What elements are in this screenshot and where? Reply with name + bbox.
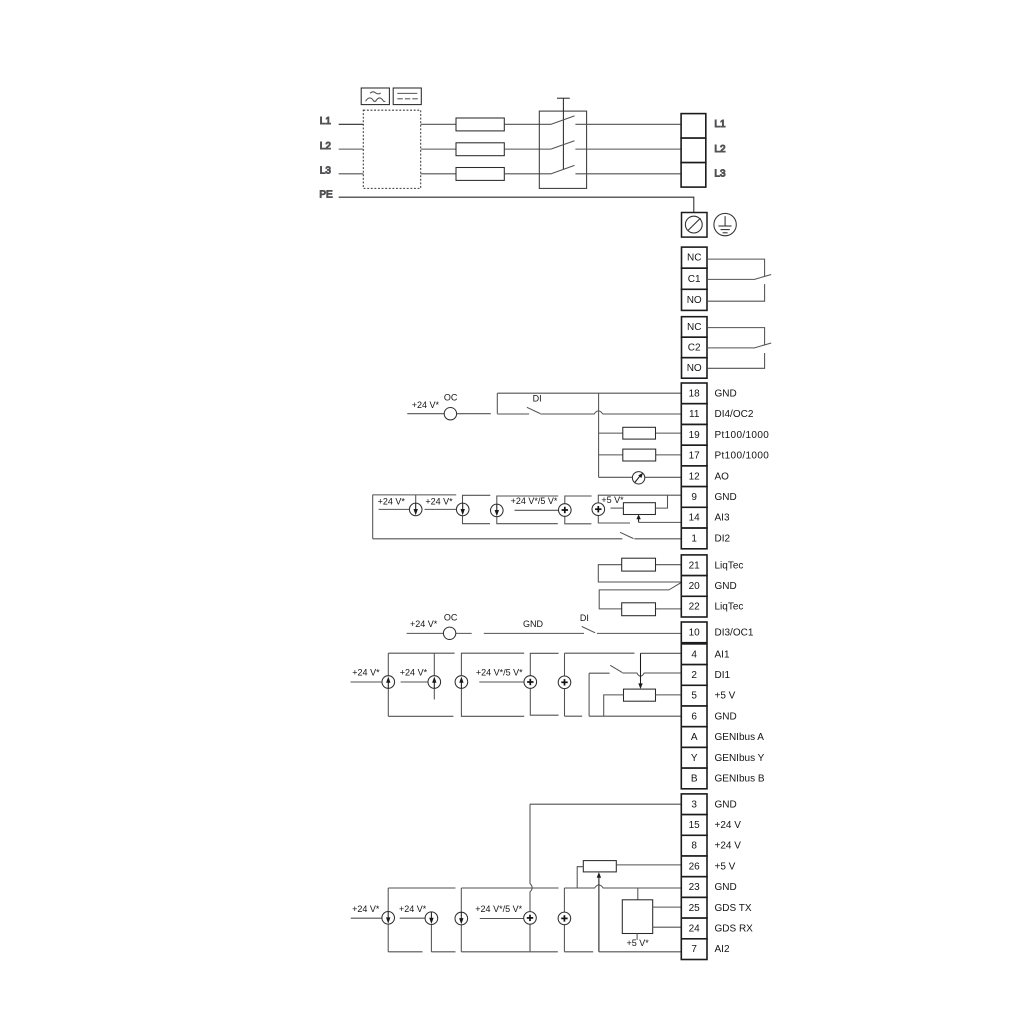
svg-text:7: 7 bbox=[691, 944, 697, 955]
svg-text:+24 V*: +24 V* bbox=[352, 904, 380, 914]
svg-text:NC: NC bbox=[687, 322, 701, 333]
svg-text:21: 21 bbox=[689, 560, 701, 571]
svg-text:Pt100/1000: Pt100/1000 bbox=[715, 451, 770, 462]
svg-text:DI: DI bbox=[580, 613, 589, 623]
svg-text:8: 8 bbox=[691, 841, 697, 852]
svg-text:6: 6 bbox=[691, 711, 697, 722]
svg-text:+24 V*: +24 V* bbox=[400, 667, 428, 677]
svg-text:24: 24 bbox=[689, 924, 701, 935]
svg-text:Y: Y bbox=[691, 753, 698, 764]
svg-text:23: 23 bbox=[689, 882, 701, 893]
svg-text:DI2: DI2 bbox=[715, 533, 731, 544]
svg-text:GND: GND bbox=[715, 711, 737, 722]
svg-text:LiqTec: LiqTec bbox=[715, 560, 744, 571]
svg-text:GDS TX: GDS TX bbox=[715, 903, 752, 914]
svg-text:25: 25 bbox=[689, 903, 701, 914]
svg-text:LiqTec: LiqTec bbox=[715, 602, 744, 613]
svg-text:L2: L2 bbox=[320, 141, 332, 152]
svg-text:14: 14 bbox=[689, 513, 701, 524]
svg-text:26: 26 bbox=[689, 861, 701, 872]
svg-text:L3: L3 bbox=[320, 166, 332, 177]
svg-text:19: 19 bbox=[689, 430, 701, 441]
svg-text:+24 V*: +24 V* bbox=[378, 497, 406, 507]
svg-text:AI1: AI1 bbox=[715, 649, 730, 660]
svg-text:+24 V*: +24 V* bbox=[399, 904, 427, 914]
svg-text:+24 V*/5 V*: +24 V*/5 V* bbox=[476, 667, 523, 677]
svg-text:20: 20 bbox=[689, 581, 701, 592]
svg-text:+24 V*: +24 V* bbox=[425, 497, 453, 507]
svg-text:L2: L2 bbox=[714, 144, 726, 155]
svg-text:AI2: AI2 bbox=[715, 944, 730, 955]
svg-text:+24 V: +24 V bbox=[715, 841, 742, 852]
svg-text:L3: L3 bbox=[714, 169, 726, 180]
svg-text:OC: OC bbox=[444, 613, 458, 623]
svg-text:+24 V*: +24 V* bbox=[410, 619, 438, 629]
svg-text:L1: L1 bbox=[320, 116, 332, 127]
svg-text:9: 9 bbox=[691, 492, 697, 503]
svg-text:22: 22 bbox=[689, 602, 701, 613]
svg-text:DI4/OC2: DI4/OC2 bbox=[715, 409, 754, 420]
svg-text:NO: NO bbox=[687, 295, 702, 306]
svg-text:DI3/OC1: DI3/OC1 bbox=[715, 627, 754, 638]
svg-text:+24 V*/5 V*: +24 V*/5 V* bbox=[511, 496, 558, 506]
svg-text:NC: NC bbox=[687, 253, 701, 264]
svg-text:5: 5 bbox=[691, 691, 697, 702]
svg-text:+5 V: +5 V bbox=[715, 691, 736, 702]
svg-text:1: 1 bbox=[691, 533, 697, 544]
svg-text:+24 V*: +24 V* bbox=[412, 400, 440, 410]
svg-text:+24 V*/5 V*: +24 V*/5 V* bbox=[475, 904, 522, 914]
svg-text:GND: GND bbox=[715, 388, 737, 399]
svg-text:Pt100/1000: Pt100/1000 bbox=[715, 430, 770, 441]
svg-text:+5 V: +5 V bbox=[715, 861, 736, 872]
svg-text:3: 3 bbox=[691, 799, 697, 810]
svg-text:GDS RX: GDS RX bbox=[715, 924, 754, 935]
svg-text:12: 12 bbox=[689, 471, 701, 482]
svg-text:GND: GND bbox=[715, 882, 737, 893]
svg-text:GND: GND bbox=[715, 492, 737, 503]
svg-text:GND: GND bbox=[715, 799, 737, 810]
svg-text:B: B bbox=[691, 774, 698, 785]
svg-text:A: A bbox=[691, 732, 698, 743]
svg-text:GND: GND bbox=[715, 581, 737, 592]
svg-text:L1: L1 bbox=[714, 119, 726, 130]
svg-text:GENIbus Y: GENIbus Y bbox=[715, 753, 765, 764]
svg-text:GENIbus A: GENIbus A bbox=[715, 732, 765, 743]
svg-text:PE: PE bbox=[319, 189, 333, 200]
svg-text:15: 15 bbox=[689, 820, 701, 831]
svg-text:2: 2 bbox=[691, 670, 697, 681]
svg-text:C1: C1 bbox=[688, 274, 701, 285]
svg-text:+24 V*: +24 V* bbox=[352, 667, 380, 677]
svg-text:C2: C2 bbox=[688, 343, 701, 354]
svg-text:18: 18 bbox=[689, 388, 701, 399]
svg-text:OC: OC bbox=[444, 393, 458, 403]
svg-text:4: 4 bbox=[691, 649, 697, 660]
svg-text:DI1: DI1 bbox=[715, 670, 731, 681]
svg-text:AO: AO bbox=[715, 471, 730, 482]
svg-text:NO: NO bbox=[687, 363, 702, 374]
svg-text:+5 V*: +5 V* bbox=[627, 938, 650, 948]
svg-text:AI3: AI3 bbox=[715, 513, 730, 524]
svg-text:17: 17 bbox=[689, 451, 701, 462]
svg-text:+5 V*: +5 V* bbox=[601, 495, 624, 505]
svg-text:GENIbus B: GENIbus B bbox=[715, 774, 765, 785]
svg-text:11: 11 bbox=[689, 409, 700, 420]
svg-text:DI: DI bbox=[533, 393, 542, 403]
svg-text:10: 10 bbox=[689, 627, 701, 638]
svg-text:+24 V: +24 V bbox=[715, 820, 742, 831]
svg-text:GND: GND bbox=[523, 619, 544, 629]
